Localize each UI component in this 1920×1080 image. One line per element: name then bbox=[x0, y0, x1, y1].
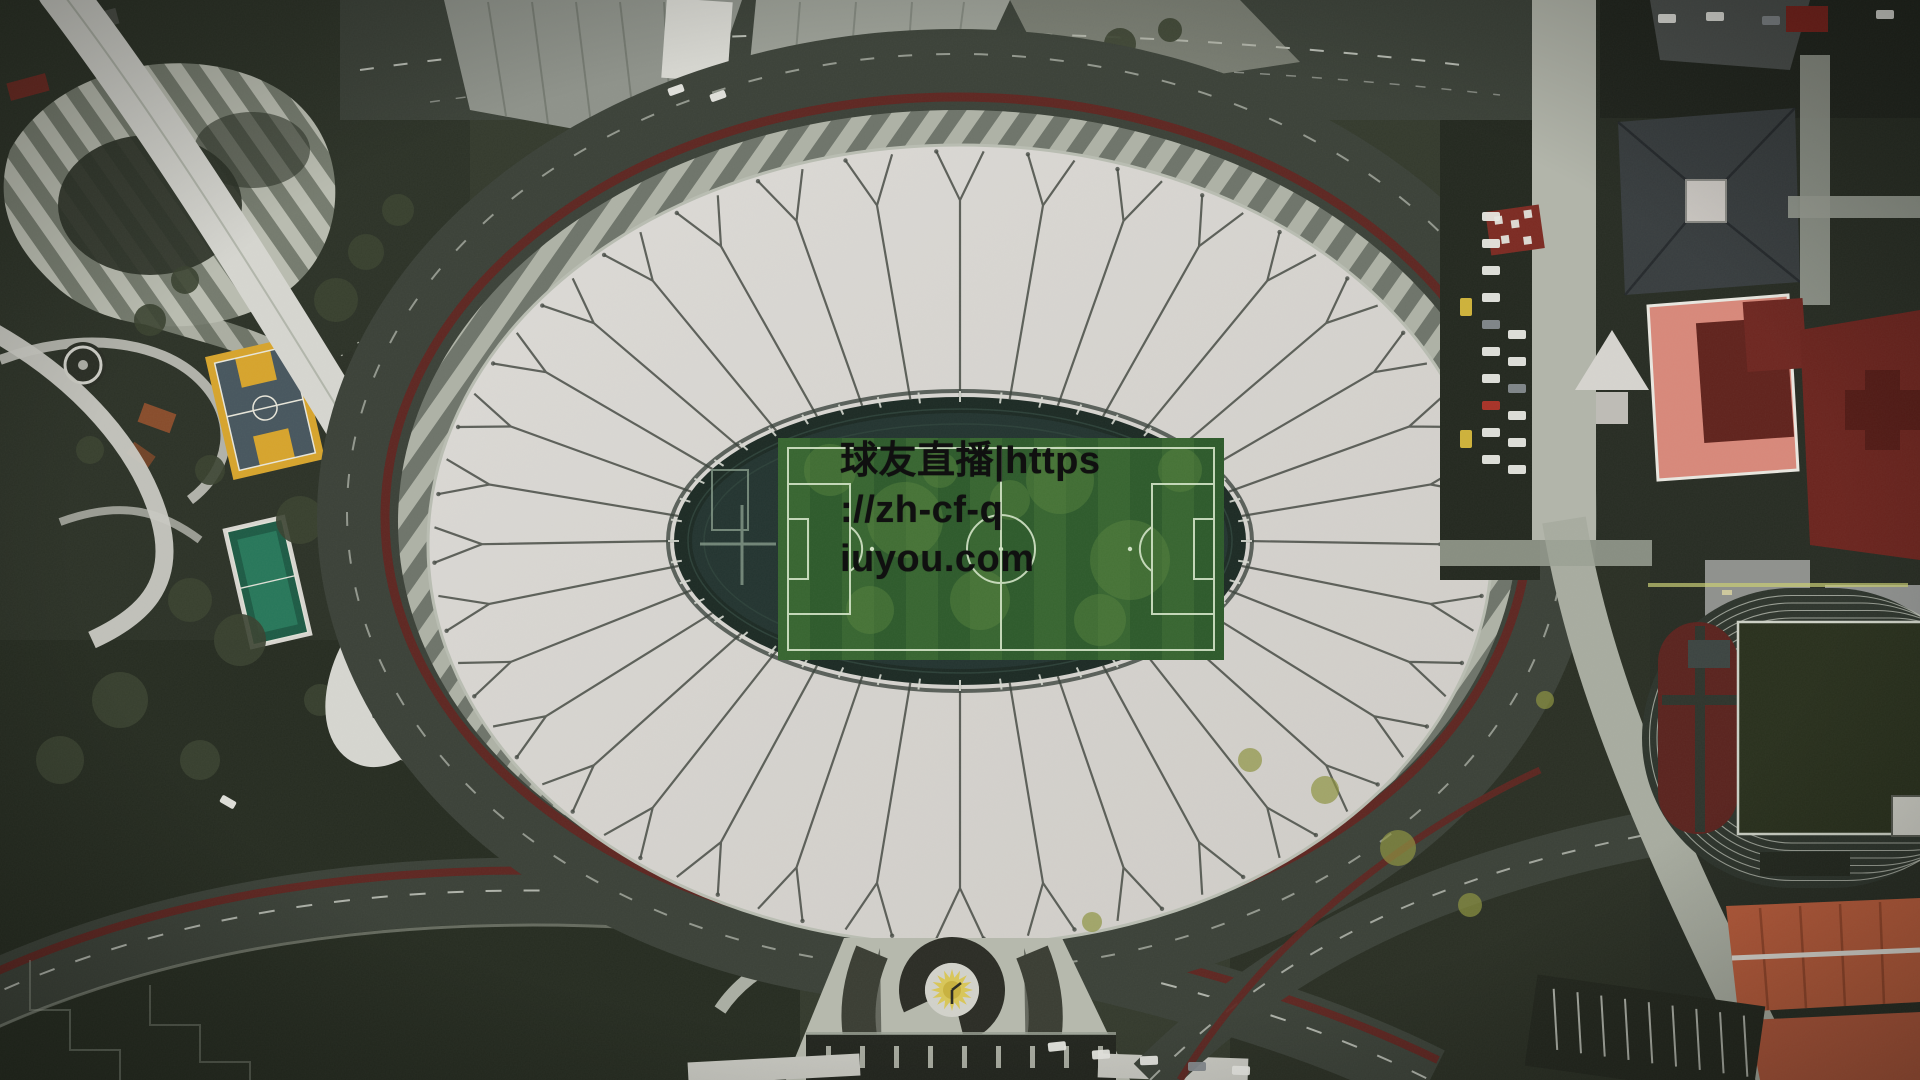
watermark-line-3: iuyou.com bbox=[840, 535, 1101, 584]
aerial-photo: 球友直播|https ://zh-cf-q iuyou.com bbox=[0, 0, 1920, 1080]
watermark-line-1: 球友直播|https bbox=[840, 437, 1101, 486]
watermark-line-2: ://zh-cf-q bbox=[840, 486, 1101, 535]
watermark-text: 球友直播|https ://zh-cf-q iuyou.com bbox=[840, 437, 1101, 584]
